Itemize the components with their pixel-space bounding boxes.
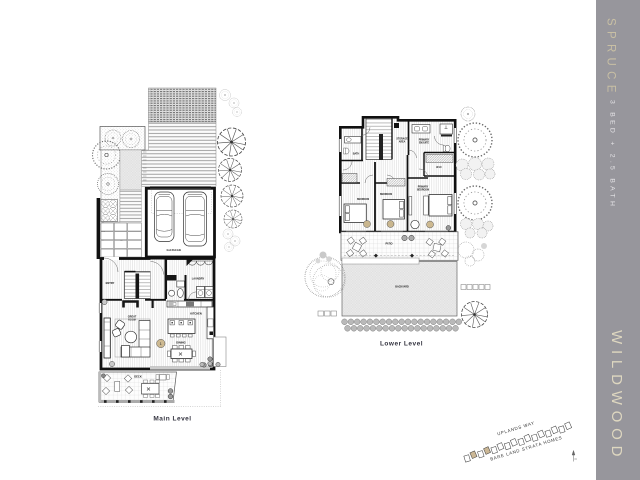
svg-text:Lower Level: Lower Level bbox=[380, 341, 423, 348]
svg-text:BEDROOM: BEDROOM bbox=[357, 199, 369, 201]
svg-text:LAUNDRY: LAUNDRY bbox=[192, 277, 205, 281]
svg-text:SPRUCE: SPRUCE bbox=[605, 18, 617, 98]
svg-text:PRIMARY: PRIMARY bbox=[419, 139, 430, 142]
svg-text:3 BED + 2.5 BATH: 3 BED + 2.5 BATH bbox=[609, 100, 616, 209]
svg-text:BATH: BATH bbox=[353, 153, 360, 156]
svg-text:STORAGE: STORAGE bbox=[396, 138, 408, 141]
svg-text:PATIO: PATIO bbox=[386, 242, 393, 245]
svg-text:KITCHEN: KITCHEN bbox=[190, 312, 202, 316]
svg-text:ENTRY: ENTRY bbox=[106, 281, 115, 285]
svg-text:BEDROOM: BEDROOM bbox=[417, 190, 429, 192]
svg-text:BEDROOM: BEDROOM bbox=[380, 194, 392, 196]
svg-text:AREA: AREA bbox=[399, 141, 406, 144]
svg-text:Main Level: Main Level bbox=[153, 416, 191, 423]
svg-text:BACKYARD: BACKYARD bbox=[395, 286, 409, 289]
svg-text:PRIMARY: PRIMARY bbox=[418, 186, 429, 189]
svg-text:UPLANDS WAY: UPLANDS WAY bbox=[497, 420, 536, 436]
svg-text:GARAGE: GARAGE bbox=[167, 248, 182, 252]
svg-text:DECK: DECK bbox=[134, 375, 142, 379]
svg-text:W.I.C: W.I.C bbox=[436, 167, 442, 169]
svg-text:N: N bbox=[575, 457, 577, 461]
svg-text:ENSUITE: ENSUITE bbox=[419, 143, 429, 145]
svg-text:WILDWOOD: WILDWOOD bbox=[608, 330, 625, 462]
svg-text:DINING: DINING bbox=[176, 340, 185, 344]
